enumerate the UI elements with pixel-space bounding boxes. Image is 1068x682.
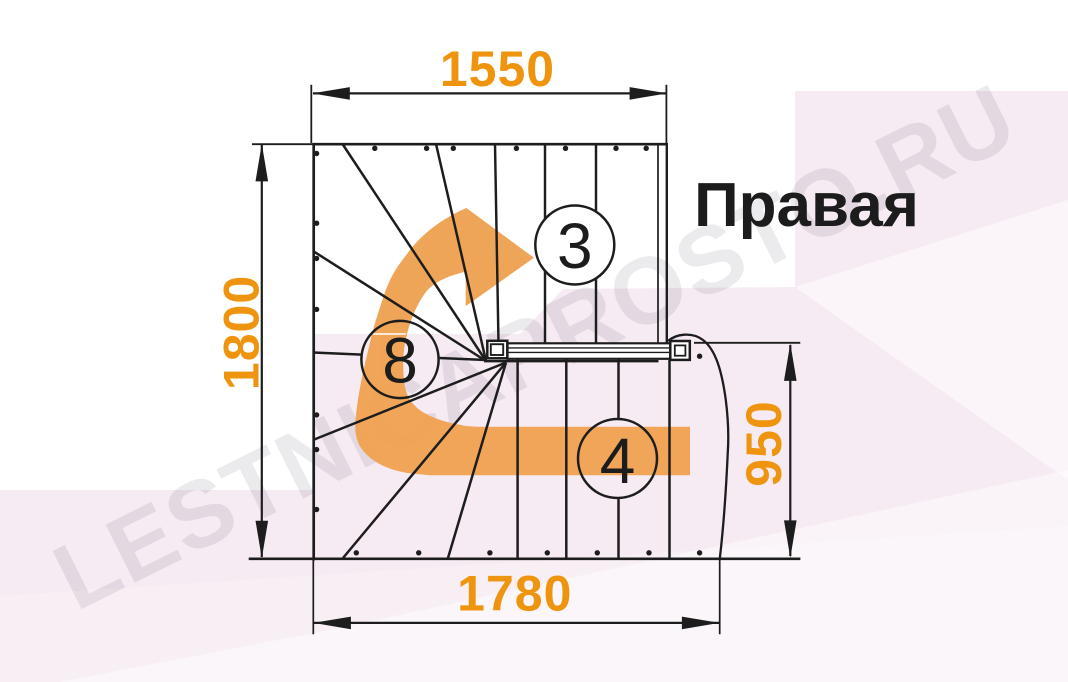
svg-text:1780: 1780 [457, 566, 572, 622]
svg-text:8: 8 [382, 325, 418, 397]
svg-text:3: 3 [557, 210, 593, 282]
svg-text:950: 950 [736, 400, 792, 486]
svg-text:1550: 1550 [440, 41, 555, 97]
svg-text:4: 4 [600, 425, 636, 497]
svg-text:Правая: Правая [694, 171, 919, 240]
svg-text:1800: 1800 [214, 275, 270, 390]
